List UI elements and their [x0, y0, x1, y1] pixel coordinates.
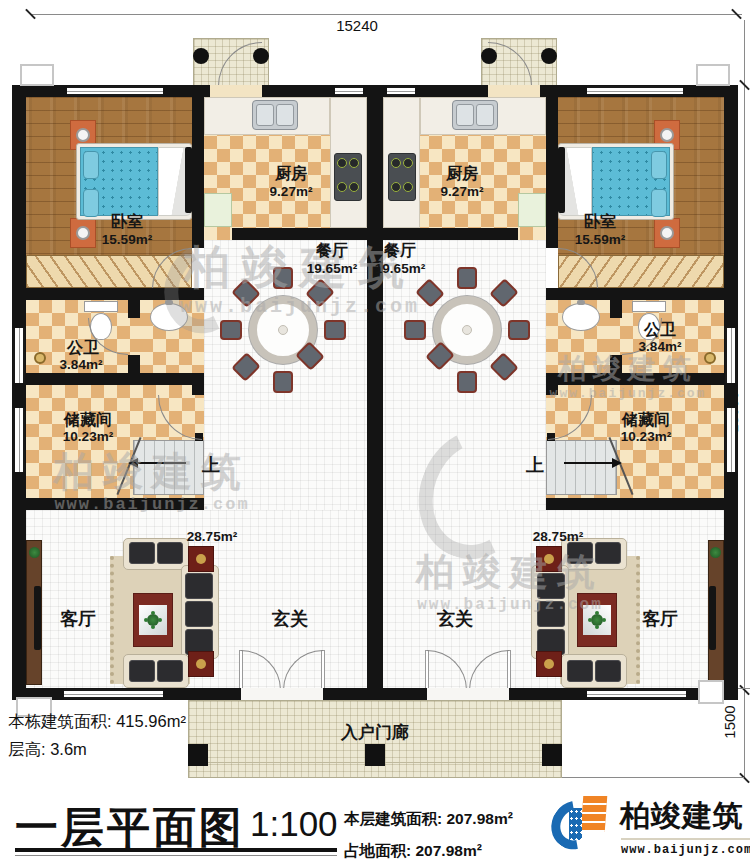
stairs-up-label: 上 — [526, 456, 544, 474]
plant — [591, 614, 603, 626]
kitchen-label: 厨房 — [446, 166, 478, 182]
watermark-text: 柏竣建筑 — [558, 353, 698, 384]
basin-tap — [577, 300, 585, 305]
porch-column — [365, 744, 385, 766]
interior-wall — [546, 288, 724, 300]
bedroom-label: 卧室 — [111, 214, 143, 230]
brand-name: 柏竣建筑 — [620, 796, 744, 837]
dim-line-right — [744, 20, 745, 779]
side-table-decor — [544, 659, 554, 669]
title-underline — [15, 848, 337, 852]
foyer-label: 玄关 — [272, 610, 308, 628]
living-tv — [34, 586, 41, 650]
bathroom-area: 3.84m² — [60, 358, 103, 372]
unit-left — [26, 97, 367, 688]
refrigerator — [518, 193, 546, 227]
kitchen-passage-floor — [518, 228, 546, 240]
interior-wall — [383, 228, 518, 240]
porch-column — [188, 744, 208, 766]
floor-area-value: 207.98m² — [446, 810, 512, 827]
pillow — [651, 189, 667, 217]
window — [725, 328, 737, 383]
burner — [349, 182, 359, 192]
burner — [391, 158, 401, 168]
floor-area-label: 本层建筑面积: — [344, 810, 442, 827]
sofa-cushion — [129, 660, 155, 682]
storage-label: 储藏间 — [622, 412, 670, 428]
window — [67, 86, 163, 96]
storage-area: 10.23m² — [621, 430, 671, 444]
floor-plan-canvas: 15240 13000 1500 — [0, 0, 750, 867]
burner — [337, 182, 347, 192]
kitchen-label: 厨房 — [275, 166, 307, 182]
window — [387, 86, 415, 96]
dining-chair — [273, 371, 293, 393]
window — [64, 689, 163, 699]
side-table-decor — [196, 554, 206, 564]
interior-wall — [192, 97, 204, 248]
nightstand-lamp — [660, 128, 674, 142]
dining-chair — [508, 320, 530, 340]
washbasin — [562, 303, 600, 331]
window — [335, 86, 363, 96]
bedroom-area: 15.59m² — [102, 233, 152, 247]
door-opening — [210, 85, 262, 97]
footprint-line: 占地面积: 207.98m² — [344, 841, 482, 862]
dining-table-center — [462, 325, 472, 335]
shower-symbol — [34, 352, 46, 364]
toilet-tank — [84, 301, 118, 312]
building-area-value: 415.96m² — [116, 712, 186, 730]
dining-area: 19.65m² — [375, 262, 425, 276]
foyer-label: 玄关 — [437, 610, 473, 628]
floor-height-line: 层高: 3.6m — [8, 739, 87, 761]
burner — [349, 158, 359, 168]
kitchen-area: 9.27m² — [270, 185, 313, 199]
kitchen-passage-floor — [204, 228, 232, 240]
dining-area: 19.65m² — [307, 262, 357, 276]
building-area-line: 本栋建筑面积: 415.96m² — [8, 711, 186, 733]
door-opening — [241, 688, 323, 700]
bedroom-label: 卧室 — [584, 214, 616, 230]
watermark: 柏竣建筑 www.baijunjz.com — [54, 447, 250, 515]
wall-notch — [20, 64, 54, 86]
dining-chair — [457, 267, 477, 289]
plant — [710, 547, 721, 558]
interior-wall — [610, 300, 622, 318]
kitchen-area: 9.27m² — [441, 185, 484, 199]
outer-wall-left — [12, 85, 26, 700]
sofa-cushion — [129, 542, 155, 564]
stair-arrow-head — [612, 458, 622, 468]
dining-table-center — [278, 325, 288, 335]
watermark: 柏竣建筑 www.baijunjz.com — [550, 352, 707, 401]
nightstand-lamp — [76, 128, 90, 142]
sink-basin — [456, 104, 474, 126]
dining-chair — [324, 320, 346, 340]
watermark: 柏竣建筑 www.baijunjz.com — [416, 550, 604, 615]
plant — [29, 547, 40, 558]
nightstand-lamp — [76, 226, 90, 240]
burner — [403, 182, 413, 192]
sink-basin — [276, 104, 294, 126]
living-label: 客厅 — [642, 610, 678, 628]
dining-label: 餐厅 — [316, 243, 348, 259]
wall-notch — [698, 680, 724, 704]
storage-label: 储藏间 — [64, 412, 112, 428]
stairs-up-label: 上 — [202, 456, 220, 474]
bathroom-area: 3.84m² — [639, 340, 682, 354]
refrigerator — [204, 193, 232, 227]
window — [13, 408, 25, 472]
interior-wall — [128, 300, 140, 318]
floor-height-label: 层高: — [8, 740, 46, 758]
bathroom-label: 公卫 — [67, 340, 99, 356]
floor-area-line: 本层建筑面积: 207.98m² — [344, 809, 513, 830]
sink-basin — [256, 104, 274, 126]
sofa-cushion — [157, 542, 183, 564]
dining-label: 餐厅 — [384, 243, 416, 259]
building-area-label: 本栋建筑面积: — [8, 712, 112, 730]
staircase — [546, 440, 617, 495]
logo-building-icon — [581, 796, 608, 832]
porch-column — [193, 48, 209, 64]
porch-column — [541, 48, 557, 64]
logo-tower-icon — [569, 808, 582, 840]
living-tv — [709, 586, 716, 650]
dining-chair — [457, 371, 477, 393]
brand-logo — [552, 792, 618, 858]
outer-wall-right — [724, 85, 738, 700]
window — [725, 408, 737, 472]
brand-website: www.baijunjz.com — [621, 838, 750, 857]
sofa-cushion — [185, 573, 213, 599]
title-underline-thin — [15, 855, 337, 856]
dim-line-top — [30, 14, 742, 15]
nightstand-lamp — [660, 226, 674, 240]
wall-notch — [696, 64, 730, 86]
watermark-url: www.baijunjz.com — [550, 386, 707, 402]
party-wall — [367, 85, 383, 700]
dining-chair — [404, 320, 426, 340]
porch-column — [542, 744, 562, 766]
living-area: 28.75m² — [187, 530, 237, 544]
plan-scale: 1:100 — [250, 804, 338, 844]
entry-porch-label: 入户门廊 — [341, 724, 409, 741]
dim-ext — [562, 777, 744, 778]
watermark-text: 柏竣建筑 — [54, 449, 250, 493]
window — [587, 689, 686, 699]
storage-area: 10.23m² — [63, 430, 113, 444]
watermark-url: www.baijunjz.com — [180, 295, 420, 319]
watermark-text: 柏竣建筑 — [416, 551, 604, 593]
door-opening — [427, 688, 509, 700]
plant — [147, 614, 159, 626]
bedroom-area: 15.59m² — [575, 233, 625, 247]
sofa-cushion — [595, 660, 621, 682]
sink-basin — [476, 104, 494, 126]
pillow — [83, 189, 99, 217]
sofa-cushion — [567, 660, 593, 682]
interior-wall — [546, 97, 558, 248]
footprint-value: 207.98m² — [415, 842, 481, 859]
side-table-decor — [196, 659, 206, 669]
burner — [403, 158, 413, 168]
burner — [337, 158, 347, 168]
interior-wall — [232, 228, 367, 240]
window — [587, 86, 683, 96]
bathroom-label: 公卫 — [644, 322, 676, 338]
toilet-tank — [632, 301, 666, 312]
burner — [391, 182, 401, 192]
stair-arrow — [564, 462, 612, 464]
interior-wall — [192, 385, 204, 395]
dim-width: 15240 — [336, 17, 378, 34]
window — [13, 328, 25, 383]
interior-wall — [546, 498, 724, 510]
sofa-cushion — [185, 601, 213, 627]
living-area: 28.75m² — [533, 530, 583, 544]
bedroom-tv — [185, 147, 192, 213]
pillow — [651, 151, 667, 179]
sofa-cushion — [157, 660, 183, 682]
living-label: 客厅 — [60, 610, 96, 628]
pillow — [83, 151, 99, 179]
footprint-label: 占地面积: — [344, 842, 411, 859]
interior-wall — [128, 355, 140, 373]
watermark-url: www.baijunjz.com — [54, 495, 250, 515]
dim-porch-depth: 1500 — [721, 705, 738, 738]
floor-height-value: 3.6m — [50, 740, 87, 758]
door-opening — [488, 85, 540, 97]
bedroom-tv — [558, 147, 565, 213]
interior-wall — [26, 373, 204, 385]
